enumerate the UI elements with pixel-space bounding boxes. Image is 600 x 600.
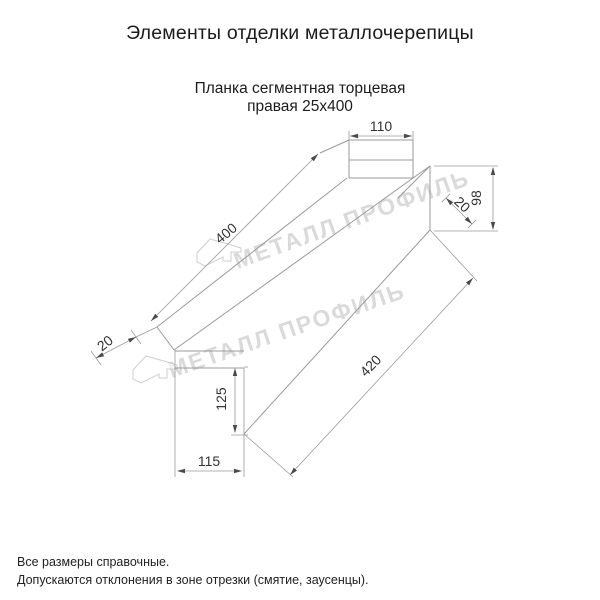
- dimension-125: 125: [213, 367, 248, 435]
- dimension-20-left: 20: [91, 330, 141, 365]
- technical-drawing: МЕТАЛЛ ПРОФИЛЬ МЕТАЛЛ ПРОФИЛЬ: [0, 0, 600, 600]
- right-end-top-edge: [413, 166, 430, 178]
- left-end-edge: [157, 327, 174, 350]
- dim-label-110: 110: [370, 118, 393, 134]
- watermark-text-upper: МЕТАЛЛ ПРОФИЛЬ: [230, 164, 473, 274]
- dim-label-115: 115: [198, 453, 221, 469]
- dimension-110: 110: [349, 118, 413, 141]
- dim-label-125: 125: [213, 387, 229, 411]
- top-flange-face: [349, 140, 413, 178]
- dim-label-20-left: 20: [94, 332, 116, 354]
- footer-note-2: Допускаются отклонения в зоне отрезки (с…: [17, 572, 369, 590]
- page: Элементы отделки металлочерепицы Планка …: [0, 0, 600, 600]
- dimension-420: 420: [244, 230, 477, 477]
- footer-notes: Все размеры справочные. Допускаются откл…: [17, 554, 369, 589]
- dim-label-420: 420: [357, 351, 385, 379]
- top-flange-far-edge: [320, 140, 349, 153]
- footer-note-1: Все размеры справочные.: [17, 554, 369, 572]
